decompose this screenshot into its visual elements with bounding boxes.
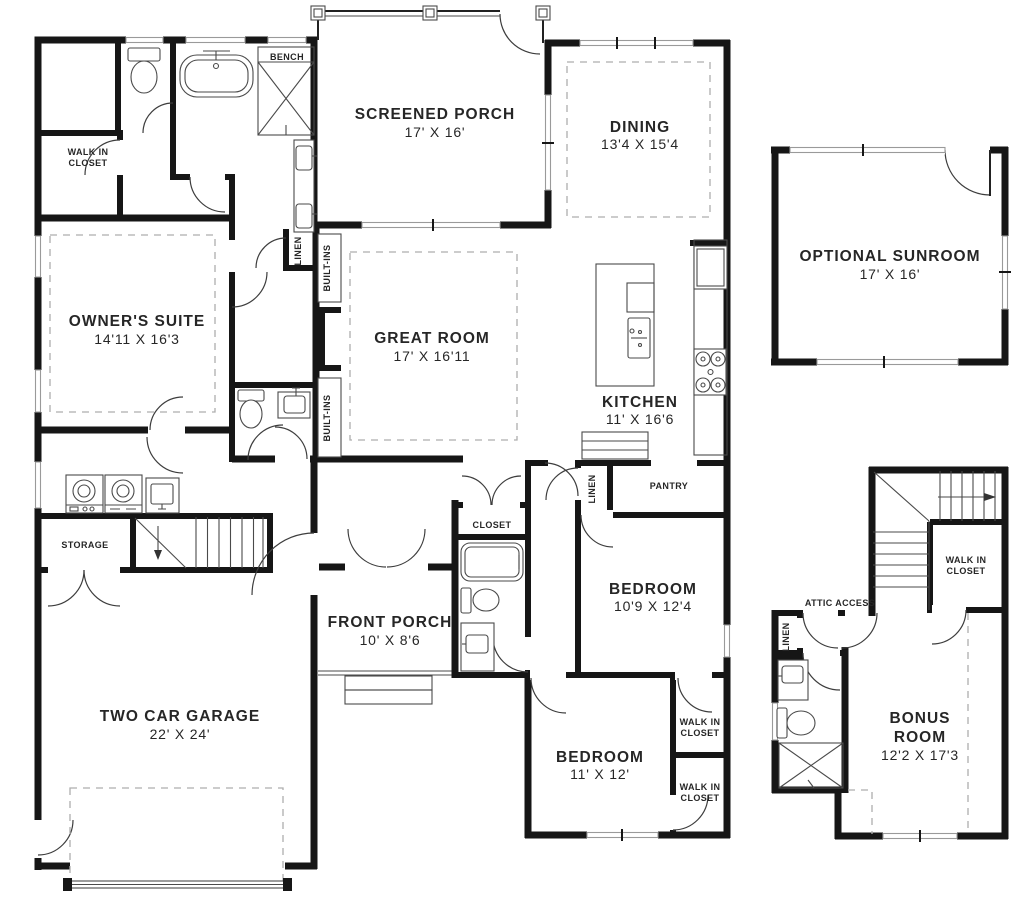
laundry-fixtures [66, 475, 179, 513]
toilet-icon [240, 400, 262, 428]
owners-suite-label: OWNER'S SUITE [69, 313, 205, 330]
svg-text:14'11 X 16'3: 14'11 X 16'3 [94, 331, 180, 347]
svg-text:17' X 16': 17' X 16' [405, 124, 466, 140]
svg-text:13'4 X 15'4: 13'4 X 15'4 [601, 136, 679, 152]
linen-label: LINEN [293, 237, 303, 266]
closet-label: CLOSET [473, 520, 512, 530]
porch-post [536, 6, 550, 20]
walk-in-closet-label: WALK IN [68, 147, 109, 157]
svg-text:10' X 8'6: 10' X 8'6 [360, 632, 421, 648]
great-room-label: GREAT ROOM [374, 330, 490, 347]
dining-label: DINING [610, 119, 670, 136]
floor-plan-drawing: BENCH WALK IN CLOSET LINEN BUILT-INS BUI… [0, 0, 1024, 899]
toilet-tank [238, 390, 264, 401]
dryer-icon [105, 475, 142, 513]
refrigerator-icon [694, 246, 727, 289]
svg-text:11' X 16'6: 11' X 16'6 [606, 411, 674, 427]
background [0, 0, 1024, 899]
front-porch-label: FRONT PORCH [328, 614, 453, 631]
vanity-counter [294, 140, 314, 232]
toilet-icon [787, 711, 815, 735]
svg-text:CLOSET: CLOSET [681, 793, 720, 803]
kitchen-island [596, 264, 654, 386]
screened-porch-label: SCREENED PORCH [355, 106, 515, 123]
svg-text:ROOM: ROOM [894, 729, 946, 746]
linen-label: LINEN [587, 475, 597, 504]
walk-in-closet-label: WALK IN [680, 782, 721, 792]
porch-post [423, 6, 437, 20]
svg-text:CLOSET: CLOSET [681, 728, 720, 738]
walk-in-closet-label: WALK IN [680, 717, 721, 727]
linen-label: LINEN [781, 623, 791, 652]
pantry-label: PANTRY [650, 481, 688, 491]
stove-icon [694, 349, 726, 395]
garage-label: TWO CAR GARAGE [100, 708, 260, 725]
attic-access-label: ATTIC ACCESS [805, 598, 875, 608]
bedroom2-label: BEDROOM [556, 749, 644, 766]
floor-plan-page: BENCH WALK IN CLOSET LINEN BUILT-INS BUI… [0, 0, 1024, 899]
kitchen-label: KITCHEN [602, 394, 678, 411]
svg-text:17' X 16': 17' X 16' [860, 266, 921, 282]
walk-in-closet-label: WALK IN [946, 555, 987, 565]
bathtub-icon [180, 55, 253, 97]
svg-text:CLOSET: CLOSET [947, 566, 986, 576]
bedroom1-label: BEDROOM [609, 581, 697, 598]
svg-text:12'2 X 17'3: 12'2 X 17'3 [881, 747, 959, 763]
svg-text:17' X 16'11: 17' X 16'11 [394, 348, 471, 364]
built-ins-label: BUILT-INS [322, 395, 332, 442]
svg-text:CLOSET: CLOSET [69, 158, 108, 168]
storage-label: STORAGE [61, 540, 108, 550]
toilet-icon [131, 61, 157, 93]
porch-post [311, 6, 325, 20]
toilet-tank [777, 708, 787, 738]
kitchen-peninsula [582, 432, 648, 459]
toilet-icon [473, 589, 499, 611]
toilet-tank [461, 588, 471, 613]
bathtub-icon [461, 543, 523, 581]
svg-text:10'9 X 12'4: 10'9 X 12'4 [614, 598, 692, 614]
toilet-tank [128, 48, 160, 61]
bench-label: BENCH [270, 52, 304, 62]
bonus-room-label: BONUS [890, 710, 951, 727]
built-ins-label: BUILT-INS [322, 245, 332, 292]
svg-text:22' X 24': 22' X 24' [150, 726, 211, 742]
svg-text:11' X 12': 11' X 12' [570, 766, 630, 782]
sunroom-label: OPTIONAL SUNROOM [799, 248, 980, 265]
